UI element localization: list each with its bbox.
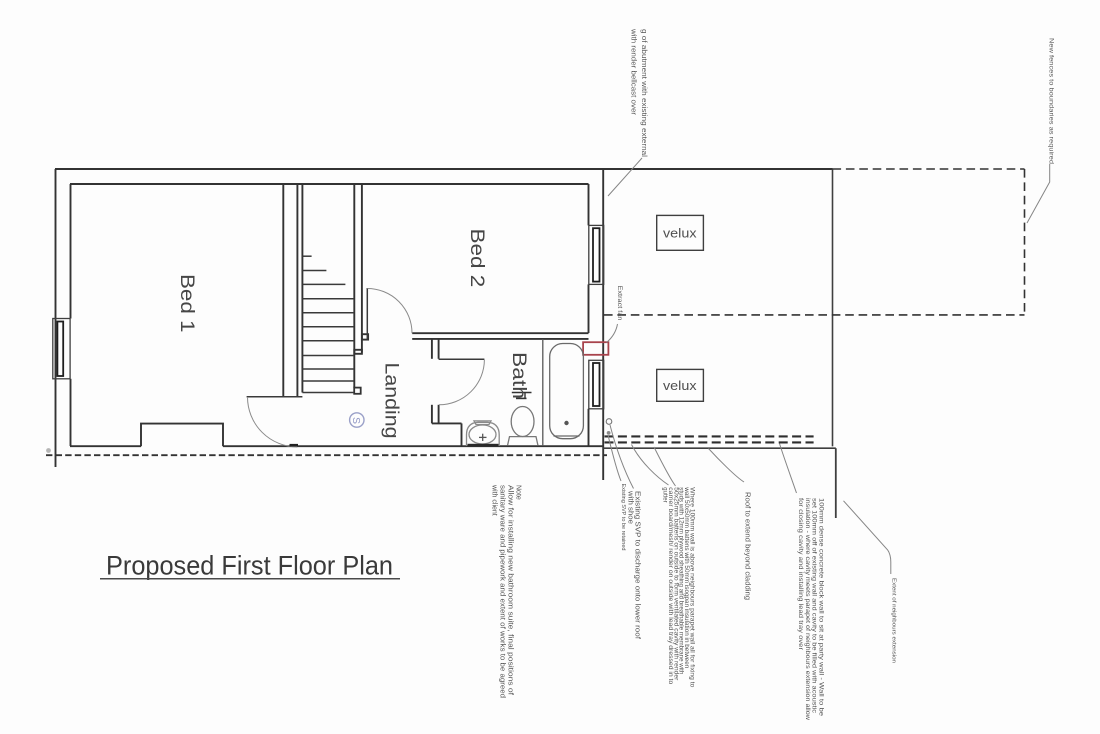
svg-text:with render bellcast over: with render bellcast over <box>630 28 637 116</box>
svg-text:New fences to boundaries as re: New fences to boundaries as required <box>1048 38 1055 164</box>
svg-text:for closing cavity and install: for closing cavity and installing lead t… <box>797 498 804 651</box>
svg-text:Proposed First Floor Plan: Proposed First Floor Plan <box>106 551 393 581</box>
svg-text:sanitary ware and pipework and: sanitary ware and pipework and extent of… <box>499 485 506 698</box>
svg-text:S: S <box>350 417 362 424</box>
svg-text:Bed 1: Bed 1 <box>176 274 197 333</box>
svg-text:Bath: Bath <box>508 352 529 399</box>
svg-text:Extent of neighbours extension: Extent of neighbours extension <box>891 578 897 663</box>
svg-text:Landing: Landing <box>381 363 402 439</box>
svg-text:gutter: gutter <box>662 487 668 502</box>
svg-text:g of abutment with existing ex: g of abutment with existing external <box>640 29 647 158</box>
svg-text:carrier board/mesh/ render on: carrier board/mesh/ render on outside wi… <box>667 487 673 685</box>
svg-text:Roof to extend beyond cladding: Roof to extend beyond cladding <box>744 492 751 600</box>
svg-text:with shoe: with shoe <box>627 490 634 524</box>
svg-text:velux: velux <box>663 226 697 241</box>
svg-text:Existing SVP to be retained: Existing SVP to be retained <box>620 484 626 551</box>
svg-text:Bed 2: Bed 2 <box>466 229 487 288</box>
svg-text:Allow for installing new bathr: Allow for installing new bathroom suite,… <box>507 485 514 695</box>
svg-text:Extract fan: Extract fan <box>616 286 623 322</box>
svg-text:Note: Note <box>515 485 522 500</box>
svg-text:velux: velux <box>663 378 697 393</box>
svg-text:with client: with client <box>491 484 498 516</box>
